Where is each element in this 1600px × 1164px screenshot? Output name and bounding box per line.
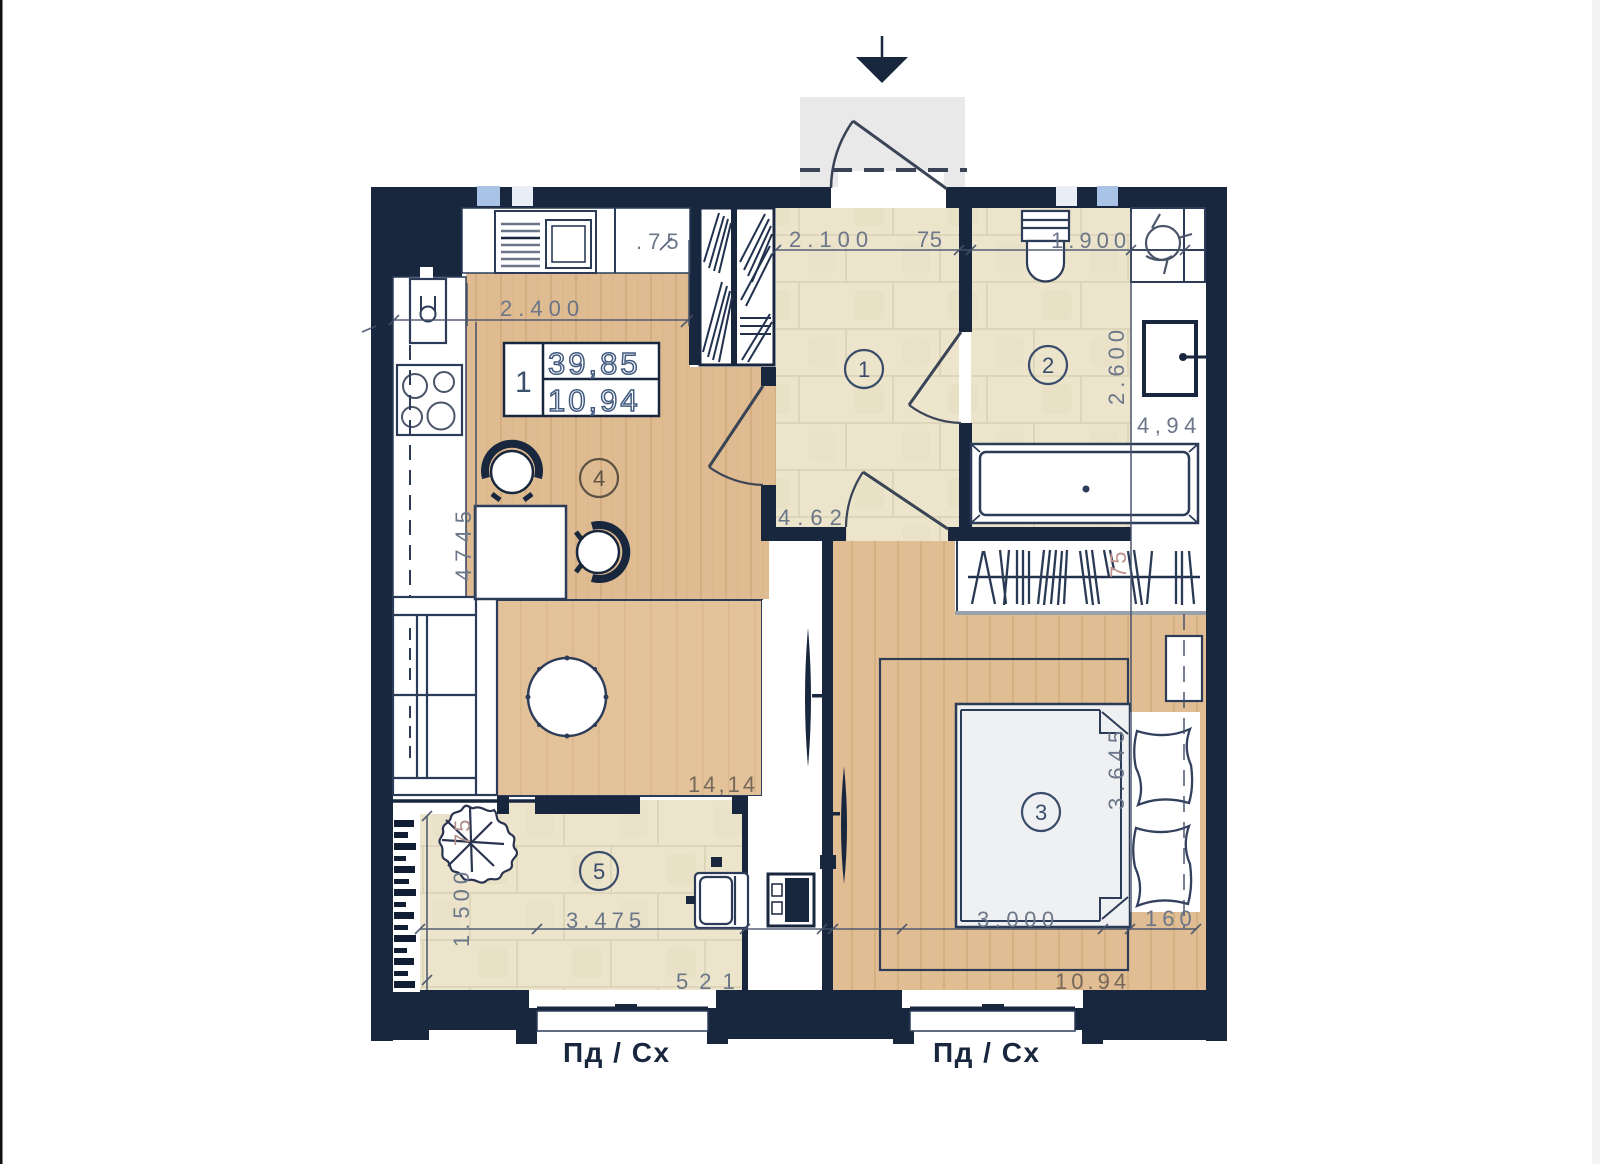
svg-text:14,14: 14,14	[688, 772, 758, 797]
svg-text:10.94: 10.94	[1055, 969, 1130, 994]
svg-text:3.000: 3.000	[977, 907, 1060, 932]
svg-text:4: 4	[593, 466, 605, 491]
svg-text:Пд / Сх: Пд / Сх	[563, 1037, 671, 1068]
svg-text:2.400: 2.400	[500, 296, 585, 321]
svg-text:3: 3	[1035, 800, 1047, 825]
svg-text:1: 1	[858, 357, 870, 382]
svg-text:3.645: 3.645	[1104, 725, 1129, 810]
svg-text:521: 521	[676, 969, 746, 994]
svg-text:2: 2	[1042, 353, 1054, 378]
svg-text:39,85: 39,85	[548, 346, 641, 381]
svg-text:3.475: 3.475	[566, 908, 646, 933]
svg-text:2.600: 2.600	[1104, 325, 1129, 405]
svg-text:5: 5	[593, 859, 605, 884]
svg-text:10,94: 10,94	[548, 383, 641, 418]
svg-text:75: 75	[917, 227, 942, 252]
svg-text:2.100: 2.100	[789, 227, 874, 252]
svg-text:75: 75	[1106, 550, 1131, 578]
svg-text:75: 75	[450, 818, 475, 846]
svg-text:160: 160	[1145, 906, 1197, 931]
svg-text:.75: .75	[636, 229, 685, 254]
svg-text:1.500: 1.500	[449, 867, 474, 947]
svg-text:4745: 4745	[451, 504, 476, 581]
svg-text:Пд / Сх: Пд / Сх	[933, 1037, 1041, 1068]
svg-text:1: 1	[515, 366, 532, 399]
svg-text:4.62: 4.62	[778, 505, 849, 530]
svg-text:4,94: 4,94	[1137, 413, 1202, 438]
svg-text:1.900: 1.900	[1051, 228, 1131, 253]
